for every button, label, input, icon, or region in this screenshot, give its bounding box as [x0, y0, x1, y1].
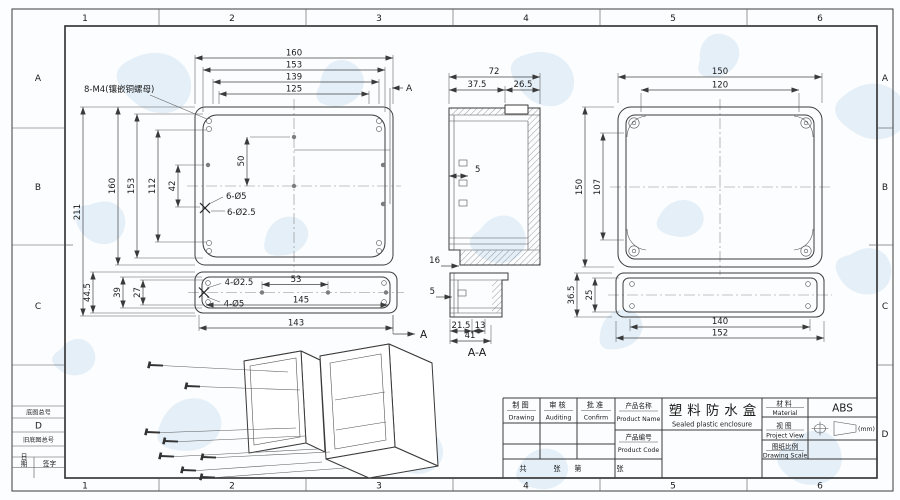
zone-col-label: 2 [229, 482, 235, 492]
material-label-cn: 材料 [776, 399, 793, 408]
drawing-label-cn: 制图 [512, 401, 530, 410]
dim-label: 140 [712, 317, 728, 327]
zone-col-label: 5 [670, 482, 676, 492]
material-label-en: Material [772, 410, 797, 417]
section-title: A-A [468, 346, 487, 359]
drawing-sheet: 1 2 3 4 5 6 1 2 3 4 5 6 A B C A B C D [0, 0, 900, 500]
dim-label: 145 [293, 296, 309, 306]
section-view: 5 16 5 72 37.5 26.5 21.5 13 41 A-A [429, 67, 540, 359]
zone-row-label: B [35, 183, 41, 193]
view-label-en: Project View [766, 433, 804, 440]
sheet-total-label: 共 [519, 464, 526, 473]
screw-icon [200, 474, 215, 481]
dim-label: 39 [113, 287, 123, 298]
sheet-label: 张 [616, 464, 623, 473]
dim-label: 143 [288, 319, 304, 329]
base-strip-view: 4-Ø2.5 4-Ø5 53 145 143 44.5 39 27 A [83, 272, 428, 341]
insert-nut-note: 8-M4(镶嵌铜螺母) [84, 84, 154, 95]
stamp-boxes: 底图总号 D 旧底图总号 日期 签字 [12, 406, 65, 478]
signature-label: 签字 [43, 459, 57, 468]
screw-icon [185, 383, 200, 390]
product-code-label-cn: 产品编号 [625, 433, 652, 442]
dim-label: 41 [465, 331, 476, 341]
dim-label: 160 [108, 178, 118, 194]
dim-label: 120 [712, 81, 728, 91]
material-value: ABS [832, 403, 853, 415]
zone-row-label: B [882, 183, 888, 193]
zone-col-label: 6 [817, 482, 823, 492]
section-mark: A [420, 329, 428, 341]
dim-label: 160 [286, 49, 302, 59]
view-label-cn: 视图 [776, 421, 793, 430]
dim-label: 44.5 [83, 283, 93, 302]
screw-icon [181, 467, 196, 474]
zone-row-label: D [35, 422, 42, 432]
unit-label: (mm) [858, 426, 875, 433]
drawing-label-en: Drawing [509, 415, 535, 422]
dim-label: 25 [585, 290, 595, 301]
product-name-label-cn: 产品名称 [625, 401, 652, 410]
dim-label: 112 [148, 178, 158, 194]
dim-label: 50 [237, 156, 247, 167]
sheet-no-label: 第 [574, 464, 581, 473]
zone-col-label: 1 [82, 482, 88, 492]
dim-label: 27 [133, 287, 143, 298]
cover-view: 150 120 150 107 36.5 25 140 152 [567, 67, 832, 342]
dim-label: 5 [430, 287, 435, 297]
dim-label: 150 [575, 179, 585, 195]
hole-spec-label: 6-Ø5 [226, 191, 247, 202]
product-title-cn: 塑料防水盒 [669, 402, 762, 419]
zone-col-label: 5 [670, 14, 676, 24]
base-drawing-no-label: 底图总号 [26, 409, 51, 417]
zone-row-label: C [35, 302, 41, 312]
dim-label: 42 [168, 181, 178, 192]
zone-row-label: A [35, 74, 42, 84]
zone-row-label: D [882, 430, 889, 440]
sheet-label: 张 [553, 464, 560, 473]
old-base-drawing-no-label: 旧底图总号 [23, 436, 54, 444]
dim-label: 72 [489, 67, 500, 77]
dim-label: 16 [429, 256, 440, 266]
dim-label: 211 [73, 204, 83, 220]
zone-col-label: 4 [523, 14, 529, 24]
auditing-label-cn: 审核 [549, 401, 567, 410]
confirm-label-en: Confirm [584, 415, 608, 422]
dim-label: 153 [127, 178, 137, 194]
section-mark: A [406, 84, 413, 94]
zone-col-label: 3 [376, 482, 382, 492]
dim-label: 150 [712, 67, 728, 77]
hole-spec-label: 4-Ø5 [224, 299, 245, 310]
scale-label-cn: 图纸比例 [772, 442, 799, 451]
dim-label: 26.5 [514, 80, 533, 90]
zone-row-label: C [882, 302, 888, 312]
zone-col-label: 6 [817, 14, 823, 24]
dim-label: 153 [286, 61, 302, 71]
zone-col-label: 2 [229, 14, 235, 24]
zone-col-label: 3 [376, 14, 382, 24]
dim-label: 36.5 [567, 286, 577, 305]
product-name-label-en: Product Name [617, 416, 661, 423]
product-title-en: Sealed plastic enclosure [672, 421, 752, 429]
dim-label: 21.5 [452, 321, 471, 331]
zone-col-label: 1 [82, 14, 88, 24]
technical-drawing: 1 2 3 4 5 6 1 2 3 4 5 6 A B C A B C D [0, 0, 900, 500]
dim-label: 13 [475, 321, 486, 331]
date-label: 日期 [19, 453, 27, 468]
dim-label: 125 [286, 85, 302, 95]
dim-label: 53 [291, 275, 302, 285]
confirm-label-cn: 批准 [587, 401, 605, 410]
hole-spec-label: 4-Ø2.5 [225, 277, 254, 288]
dim-label: 107 [593, 179, 603, 195]
zone-row-label: A [882, 74, 889, 84]
scale-label-en: Drawing Scale [763, 453, 808, 460]
dim-label: 152 [712, 329, 728, 339]
dim-label: 37.5 [468, 80, 487, 90]
dim-label: 139 [286, 73, 302, 83]
auditing-label-en: Auditing [546, 415, 572, 422]
zone-col-label: 4 [523, 482, 529, 492]
screw-icon [148, 362, 163, 369]
product-code-label-en: Product Code [618, 447, 659, 454]
dim-label: 5 [475, 165, 480, 175]
screw-icon [159, 453, 174, 460]
hole-spec-label: 6-Ø2.5 [227, 207, 256, 218]
